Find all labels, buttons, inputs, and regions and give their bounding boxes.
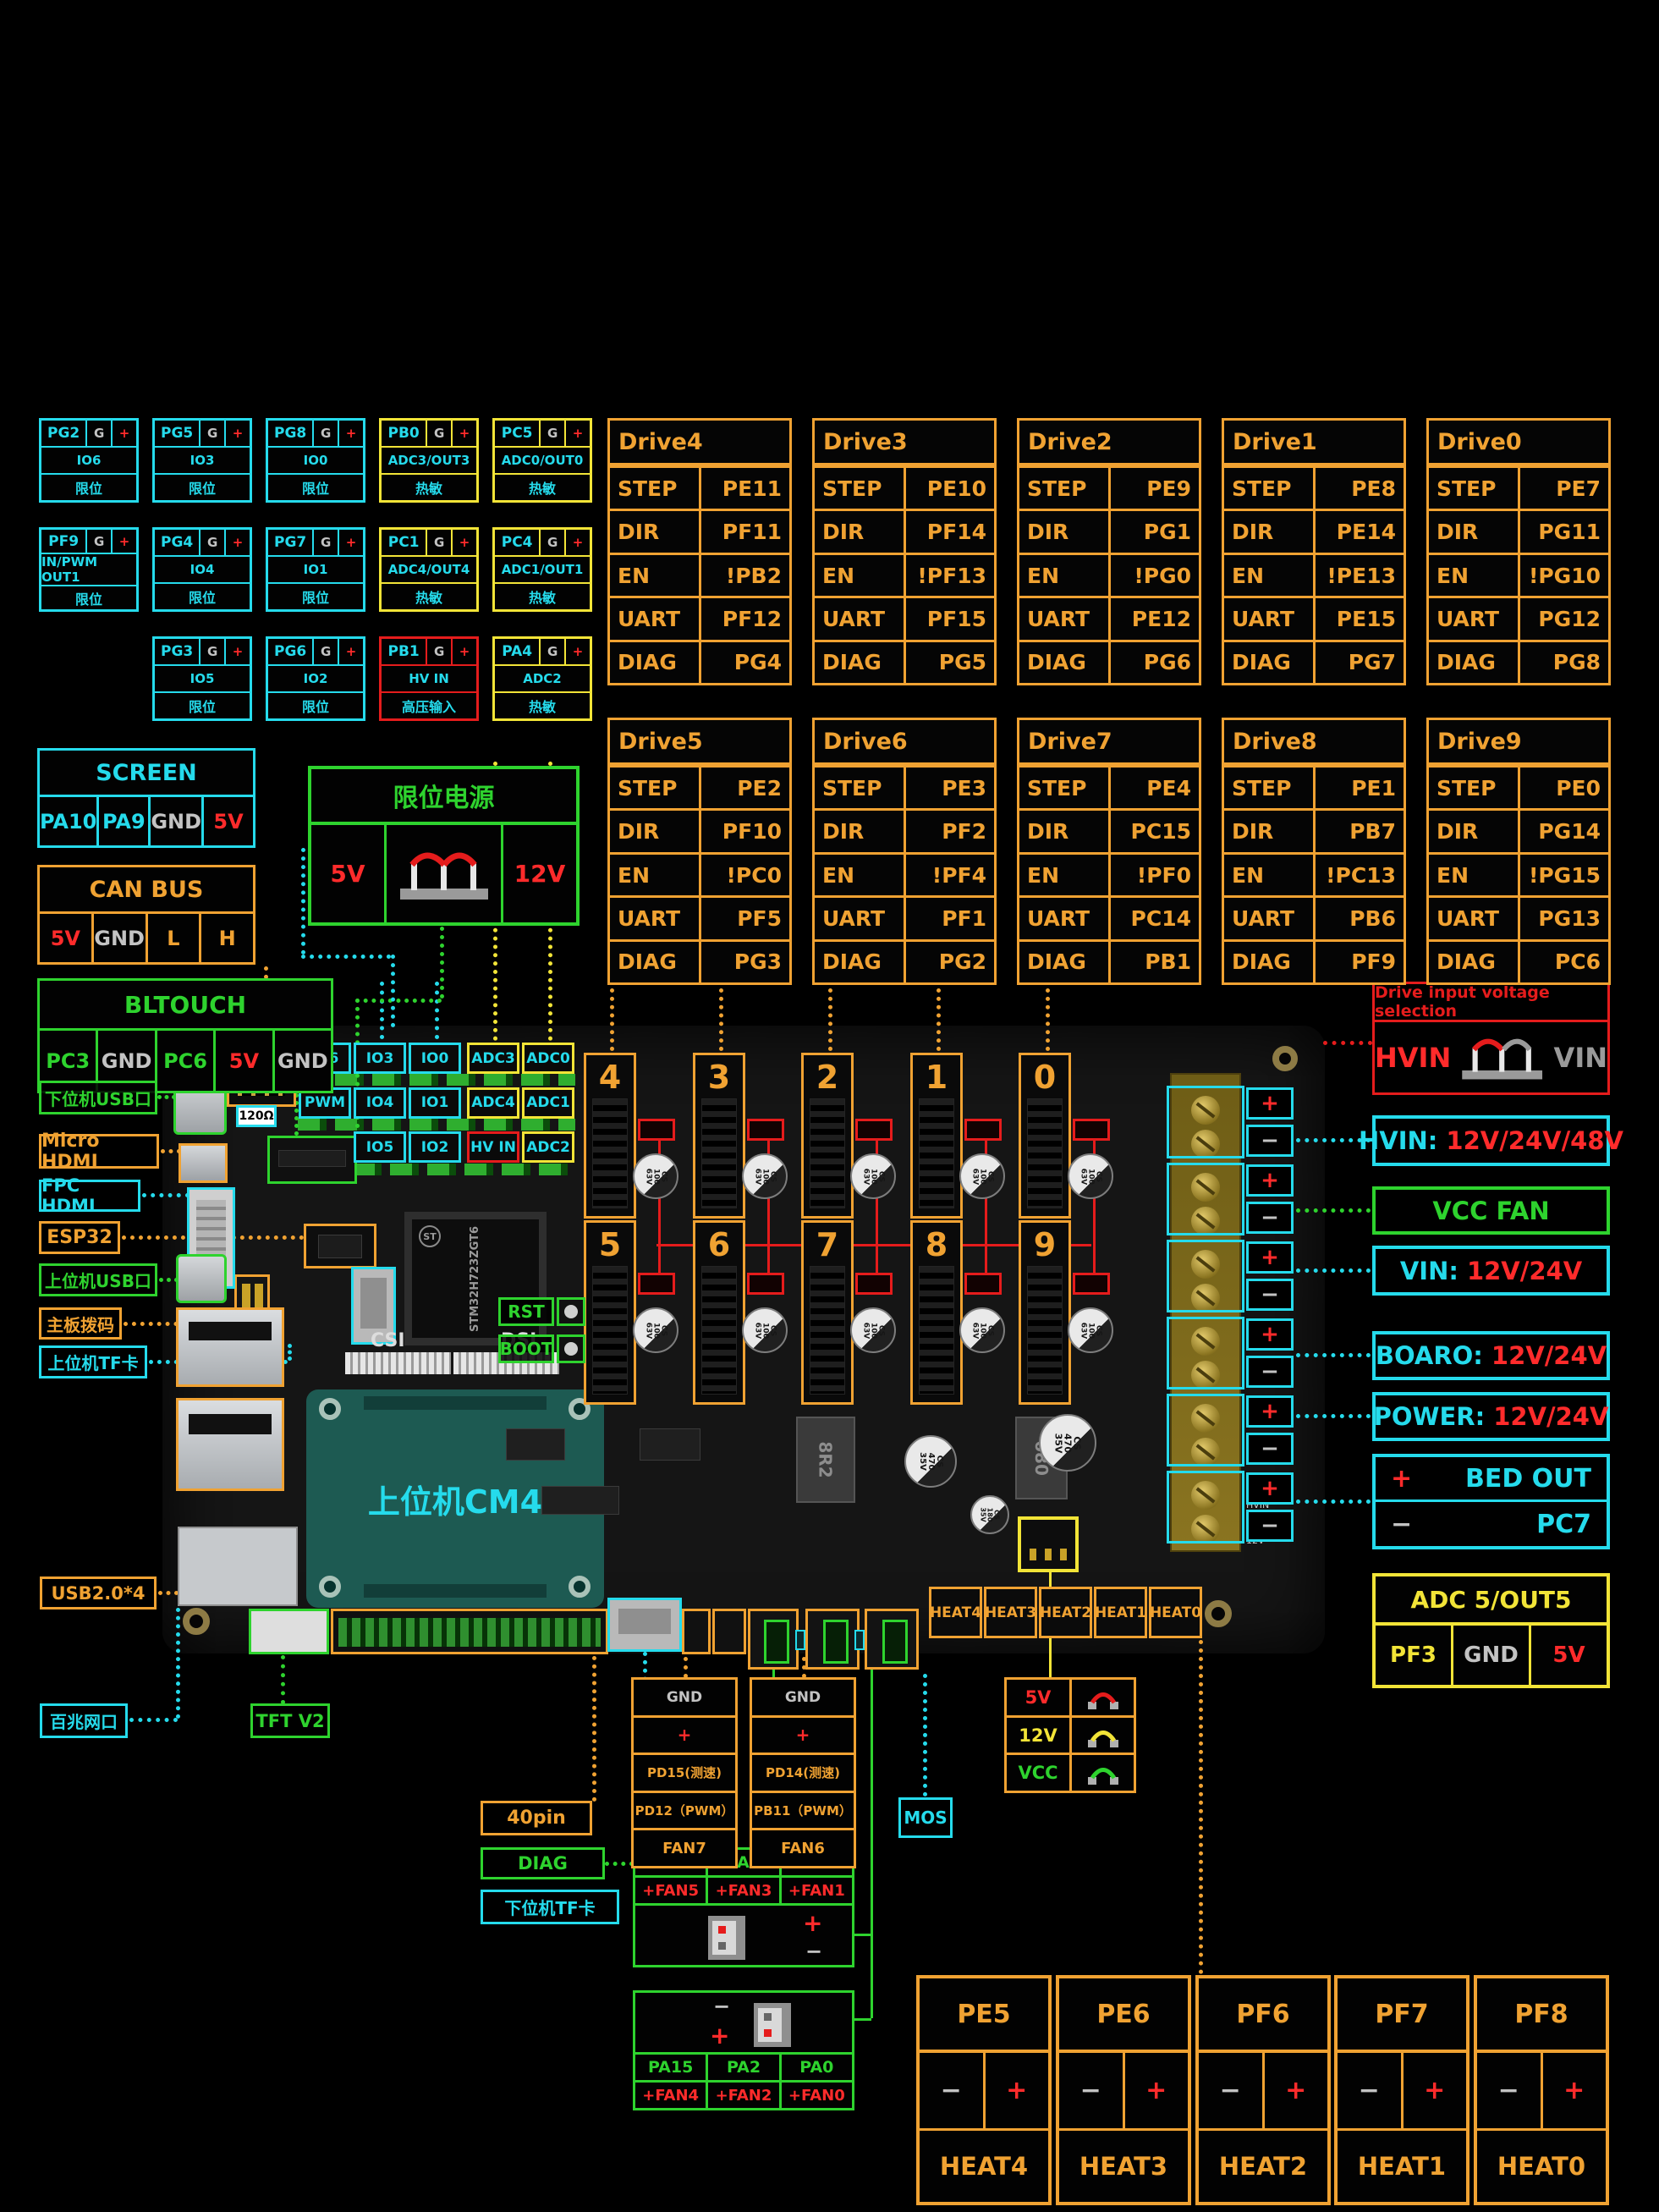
- connector-line: [1296, 1268, 1371, 1273]
- power-prefix: POWER:: [1374, 1402, 1486, 1431]
- inductor: 8R2: [796, 1417, 855, 1503]
- usb-a-stack: [176, 1398, 284, 1491]
- drive-row-uart: UARTPF5: [610, 895, 789, 938]
- drive-pin: PG11: [1520, 511, 1609, 552]
- inductor-marking: 8R2: [816, 1441, 836, 1477]
- drive-signal: DIR: [610, 811, 701, 851]
- board-voltage-label: BOARO: 12V/24V: [1372, 1331, 1610, 1380]
- io-usage-row: 热敏: [495, 473, 590, 500]
- heater-table-PE5: PE5−+HEAT4: [916, 1975, 1052, 2205]
- io-header: PB1G+: [382, 639, 476, 664]
- vin-prefix: VIN:: [1400, 1257, 1458, 1285]
- motherboard-pinout-diagram: SCREEN PA10 PA9 GND 5V CAN BUS 5V GND L …: [0, 0, 1659, 2212]
- drive-pin: PG4: [701, 642, 790, 683]
- io-plus: +: [224, 421, 250, 446]
- drive-signal: STEP: [815, 768, 906, 808]
- heat-connector-label-HEAT4: HEAT4: [929, 1587, 982, 1638]
- drive-signal: EN: [1224, 855, 1316, 895]
- heater-name-row: HEAT4: [920, 2128, 1048, 2202]
- fan7-table-cell: PD12（PWM）: [634, 1793, 735, 1829]
- io-pin-name: PG8: [268, 421, 312, 446]
- fan-voltage-header: [1018, 1516, 1079, 1572]
- fan-even-name: +FAN2: [706, 2083, 778, 2108]
- screen-pin-row: PA10 PA9 GND 5V: [40, 797, 253, 845]
- jumper-icon: [1085, 1723, 1122, 1748]
- callout-4: 上位机USB口: [39, 1263, 157, 1296]
- connector-line: [440, 927, 444, 999]
- drive-signal: EN: [815, 855, 906, 895]
- drive-row-dir: DIRPG1: [1019, 509, 1199, 552]
- capacitor-marking: CS 100 63V: [754, 1322, 777, 1339]
- drive-signal: EN: [1429, 855, 1520, 895]
- driver-socket-pins: [593, 1267, 627, 1394]
- drive-row-en: EN!PG10: [1429, 553, 1608, 596]
- bed-pin: PC7: [1536, 1510, 1591, 1539]
- io-function-row: ADC0/OUT0: [495, 446, 590, 473]
- heater-minus: −: [920, 2053, 983, 2128]
- driver-socket-pins: [1028, 1267, 1062, 1394]
- drive-row-step: STEPPE8: [1224, 465, 1404, 509]
- io-usage: 热敏: [495, 693, 590, 718]
- connector-line: [288, 1344, 292, 1361]
- io-plus: +: [564, 639, 590, 664]
- io-function: ADC0/OUT0: [495, 448, 590, 473]
- drive-title: Drive9: [1429, 720, 1608, 765]
- io-pin-name: PB0: [382, 421, 426, 446]
- bltouch-pin: 5V: [213, 1031, 272, 1091]
- adc5-pin: 5V: [1529, 1626, 1607, 1685]
- mosfet-group: [805, 1609, 860, 1670]
- io-function: HV IN: [382, 666, 476, 691]
- vsel-row-12v: 12V: [1007, 1715, 1134, 1753]
- driver-socket-4: 4: [584, 1053, 636, 1219]
- heater-minus: −: [1477, 2053, 1541, 2128]
- screen-table: SCREEN PA10 PA9 GND 5V: [37, 748, 255, 848]
- drive-row-en: EN!PC13: [1224, 852, 1404, 895]
- drive-pin: PE2: [701, 768, 790, 808]
- driver-socket-number: 6: [708, 1226, 730, 1263]
- driver-socket-number: 1: [926, 1059, 948, 1096]
- driver-socket-number: 0: [1034, 1059, 1056, 1096]
- io-plus: +: [338, 639, 363, 664]
- fan7-table: GND+PD15(测速)PD12（PWM）FAN7: [631, 1677, 738, 1868]
- mos-label: MOS: [898, 1797, 953, 1838]
- io-gnd: G: [312, 421, 338, 446]
- drive-pin: PE0: [1520, 768, 1609, 808]
- pin-strip: [353, 1164, 575, 1175]
- bed-plus: +: [1391, 1464, 1412, 1494]
- capacitor-marking: CS 100 63V: [862, 1168, 885, 1185]
- drive-row-uart: UARTPE15: [1224, 596, 1404, 639]
- terminal-pair-outline: [1167, 1317, 1244, 1389]
- io-usage-row: 热敏: [382, 582, 476, 609]
- fan6-table-cell: GND: [752, 1680, 854, 1715]
- io-usage: 限位: [268, 475, 363, 500]
- mount-hole: [319, 1576, 341, 1598]
- io-function: ADC4/OUT4: [382, 557, 476, 582]
- io-gnd: G: [539, 530, 564, 555]
- drive-row-uart: UARTPG13: [1429, 895, 1608, 938]
- connector-line: [605, 1862, 634, 1866]
- terminator-resistor-label: 120Ω: [236, 1105, 277, 1127]
- drive-row-uart: UARTPF1: [815, 895, 994, 938]
- io-pin-name: PG2: [41, 421, 85, 446]
- fan6-table-row: PB11（PWM）: [752, 1791, 854, 1829]
- connector-line: [435, 982, 439, 1039]
- drive-signal: UART: [610, 898, 701, 938]
- drive-signal: EN: [1224, 555, 1316, 596]
- canbus-pin: 5V: [40, 914, 91, 962]
- driver-socket-number: 2: [816, 1059, 838, 1096]
- drive-signal: DIAG: [1224, 642, 1316, 683]
- heater-table-PF6: PF6−+HEAT2: [1195, 1975, 1331, 2205]
- io-usage: 限位: [155, 475, 250, 500]
- fan6-table-cell: +: [752, 1718, 854, 1753]
- io-header: PC4G+: [495, 530, 590, 555]
- callout-1: Micro HDMI: [39, 1134, 159, 1169]
- vsel-jumper-cell: [1069, 1718, 1134, 1753]
- drive-signal: EN: [610, 555, 701, 596]
- drive-pin: PE11: [701, 468, 790, 509]
- io-header: PG7G+: [268, 530, 363, 555]
- drive-title: Drive5: [610, 720, 789, 765]
- rst-button: [557, 1297, 585, 1326]
- io-function: IN/PWM OUT1: [41, 554, 136, 585]
- connector-line: [719, 988, 723, 1051]
- drive-voltage-selection: Drive input voltage selection HVIN VIN: [1372, 982, 1610, 1095]
- drive-pin: PG6: [1111, 642, 1200, 683]
- bltouch-pin: PC6: [155, 1031, 213, 1091]
- drive-title: Drive3: [815, 421, 994, 465]
- drive-table-Drive1: Drive1STEPPE8DIRPE14EN!PE13UARTPE15DIAGP…: [1222, 418, 1406, 685]
- drive-row-dir: DIRPB7: [1224, 808, 1404, 851]
- heater-name: HEAT3: [1059, 2131, 1188, 2202]
- drive-row-diag: DIAGPG2: [815, 939, 994, 982]
- io-function-row: ADC3/OUT3: [382, 446, 476, 473]
- drive-pin: PG12: [1520, 598, 1609, 639]
- drive-pin: PF2: [906, 811, 995, 851]
- drive-signal: UART: [610, 598, 701, 639]
- io-header: PA4G+: [495, 639, 590, 664]
- drive-pin: !PF4: [906, 855, 995, 895]
- fan-odd-polarity: + −: [635, 1903, 852, 1965]
- board-conn-label-ADC4: ADC4: [467, 1087, 519, 1119]
- capacitor-marking: CS 100 63V: [971, 1322, 994, 1339]
- connector-line: [142, 1193, 190, 1197]
- vsel-5v: 5V: [1007, 1680, 1069, 1715]
- drive-row-diag: DIAGPG5: [815, 640, 994, 683]
- screen-pin: PA9: [96, 797, 148, 845]
- io-function-row: ADC4/OUT4: [382, 555, 476, 582]
- connector-line: [391, 955, 395, 1027]
- canbus-title: CAN BUS: [40, 867, 253, 914]
- drive-row-en: EN!PB2: [610, 553, 789, 596]
- drive-title: Drive7: [1019, 720, 1199, 765]
- callout-11: DIAG: [481, 1847, 605, 1879]
- heater-table-PF8: PF8−+HEAT0: [1474, 1975, 1609, 2205]
- capacitor: CS 100 63V: [850, 1307, 896, 1353]
- heater-minus: −: [1199, 2053, 1262, 2128]
- drive-pin: PF1: [906, 898, 995, 938]
- capacitor: CS 100 63V: [633, 1153, 678, 1199]
- drive-signal: EN: [815, 555, 906, 596]
- drive-row-en: EN!PF13: [815, 553, 994, 596]
- heater-plus: +: [1401, 2053, 1467, 2128]
- dvs-vin-label: VIN: [1554, 1042, 1607, 1074]
- drive-row-step: STEPPE3: [815, 765, 994, 808]
- driver-socket-3: 3: [693, 1053, 745, 1219]
- fan7-table-cell: GND: [634, 1680, 735, 1715]
- drive-table-Drive4: Drive4STEPPE11DIRPF11EN!PB2UARTPF12DIAGP…: [607, 418, 792, 685]
- drive-signal: UART: [1019, 898, 1111, 938]
- io-table-PG2: PG2G+IO6限位: [39, 418, 139, 503]
- io-plus: +: [564, 421, 590, 446]
- terminal-minus: −: [1246, 1125, 1294, 1157]
- fan-even-polarity: − +: [635, 1993, 852, 2052]
- heat-connector-label-HEAT3: HEAT3: [984, 1587, 1037, 1638]
- heater-pin: PE6: [1059, 1978, 1188, 2053]
- connector-line: [1296, 1353, 1371, 1357]
- drive-signal: STEP: [1019, 768, 1111, 808]
- jumper-icon: [1458, 1032, 1546, 1084]
- jumper-icon: [1085, 1760, 1122, 1786]
- drive-row-en: EN!PE13: [1224, 553, 1404, 596]
- micro-hdmi-port: [179, 1143, 228, 1183]
- drive-row-dir: DIRPF11: [610, 509, 789, 552]
- drive-signal: UART: [815, 598, 906, 639]
- drive-pin: PG13: [1520, 898, 1609, 938]
- drive-pin: PE15: [1316, 598, 1404, 639]
- io-gnd: G: [312, 530, 338, 555]
- fan-odd-name: +FAN3: [706, 1878, 778, 1903]
- io-pin-name: PG5: [155, 421, 199, 446]
- jumper-icon: [393, 846, 495, 902]
- drive-pin: PC6: [1520, 942, 1609, 982]
- expansion-connector: [267, 1136, 357, 1184]
- driver-socket-number: 8: [926, 1226, 948, 1263]
- drive-pin: PG3: [701, 942, 790, 982]
- drive-signal: DIAG: [815, 942, 906, 982]
- connector-line: [1296, 1499, 1371, 1504]
- drive-pin: !PF0: [1111, 855, 1200, 895]
- connector-line: [853, 2018, 871, 2021]
- drive-signal: DIAG: [815, 642, 906, 683]
- io-usage-row: 限位: [41, 585, 136, 609]
- drive-signal: DIR: [1429, 511, 1520, 552]
- heater-plus: +: [1541, 2053, 1607, 2128]
- limit-power-title: 限位电源: [311, 769, 576, 825]
- io-usage: 限位: [268, 584, 363, 609]
- io-plus: +: [338, 421, 363, 446]
- screen-pin: PA10: [40, 797, 96, 845]
- drive-signal: DIR: [1019, 811, 1111, 851]
- drive-row-uart: UARTPB6: [1224, 895, 1404, 938]
- drive-pin: PE10: [906, 468, 995, 509]
- mcu-marking: STM32H723ZGT6: [470, 1225, 482, 1331]
- io-pin-name: PG3: [155, 639, 199, 664]
- vsel-jumper-cell: [1069, 1755, 1134, 1791]
- drive-title: Drive6: [815, 720, 994, 765]
- io-function: IO4: [155, 557, 250, 582]
- terminal-minus: −: [1246, 1279, 1294, 1311]
- io-plus: +: [111, 530, 136, 553]
- fan6-table-row: GND: [752, 1680, 854, 1715]
- callout-2: FPC HDMI: [39, 1180, 140, 1212]
- io-gnd: G: [312, 639, 338, 664]
- fan-odd-name: +FAN5: [635, 1878, 706, 1903]
- io-header: PB0G+: [382, 421, 476, 446]
- drive-row-step: STEPPE0: [1429, 765, 1608, 808]
- drive-pin: PG1: [1111, 511, 1200, 552]
- io-usage: 热敏: [495, 475, 590, 500]
- drive-pin: PE3: [906, 768, 995, 808]
- dvs-hvin-label: HVIN: [1375, 1042, 1451, 1074]
- io-usage-row: 限位: [268, 582, 363, 609]
- io-pin-name: PG7: [268, 530, 312, 555]
- io-table-PG3: PG3G+IO5限位: [152, 636, 252, 721]
- drive-row-en: EN!PG15: [1429, 852, 1608, 895]
- board-conn-label-ADC2: ADC2: [522, 1131, 574, 1163]
- drive-table-Drive0: Drive0STEPPE7DIRPG11EN!PG10UARTPG12DIAGP…: [1426, 418, 1611, 685]
- drive-title: Drive1: [1224, 421, 1404, 465]
- drive-pin: !PC0: [701, 855, 790, 895]
- drive-pin: !PG0: [1111, 555, 1200, 596]
- heater-polarity-row: −+: [1477, 2053, 1606, 2128]
- fan-even-plus: +: [710, 2022, 729, 2050]
- drive-pin: PF14: [906, 511, 995, 552]
- driver-socket-pins: [1028, 1099, 1062, 1208]
- io-function-row: IO6: [41, 446, 136, 473]
- capacitor-marking: CS 180 35V: [980, 1507, 1000, 1521]
- drive-pin: !PC13: [1316, 855, 1404, 895]
- csi-label: CSI: [371, 1330, 405, 1351]
- heater-polarity-row: −+: [1338, 2053, 1466, 2128]
- drive-row-diag: DIAGPG3: [610, 939, 789, 982]
- heater-table-PF7: PF7−+HEAT1: [1334, 1975, 1469, 2205]
- driver-voltage-header: [747, 1273, 784, 1295]
- fan-odd-minus: −: [805, 1940, 822, 1963]
- io-pin-name: PC5: [495, 421, 539, 446]
- driver-socket-pins: [920, 1099, 953, 1208]
- bltouch-pin: GND: [272, 1031, 331, 1091]
- drive-row-uart: UARTPC14: [1019, 895, 1199, 938]
- drive-pin: PB7: [1316, 811, 1404, 851]
- fan7-table-row: PD12（PWM）: [634, 1791, 735, 1829]
- drive-table-Drive8: Drive8STEPPE1DIRPB7EN!PC13UARTPB6DIAGPF9: [1222, 718, 1406, 985]
- mount-hole: [1205, 1600, 1232, 1627]
- drive-row-en: EN!PG0: [1019, 553, 1199, 596]
- drive-pin: PF9: [1316, 942, 1404, 982]
- heater-name: HEAT0: [1477, 2131, 1606, 2202]
- power-voltage-label: POWER: 12V/24V: [1372, 1392, 1610, 1441]
- screen-pin: 5V: [201, 797, 253, 845]
- drive-pin: !PE13: [1316, 555, 1404, 596]
- connector-line: [937, 988, 941, 1051]
- vcc-fan-text: VCC FAN: [1432, 1197, 1549, 1225]
- limit-power-jumper-cell: [384, 825, 501, 922]
- drive-row-step: STEPPE10: [815, 465, 994, 509]
- drive-signal: STEP: [1019, 468, 1111, 509]
- drive-row-diag: DIAGPG7: [1224, 640, 1404, 683]
- board-conn-label-IO5: IO5: [354, 1131, 406, 1163]
- terminal-pair-outline: [1167, 1086, 1244, 1158]
- io-plus: +: [338, 530, 363, 555]
- drive-row-diag: DIAGPB1: [1019, 939, 1199, 982]
- screen-pin: GND: [148, 797, 201, 845]
- connector-line: [380, 982, 384, 1039]
- io-function-row: HV IN: [382, 664, 476, 691]
- drive-title: Drive4: [610, 421, 789, 465]
- io-usage-row: 热敏: [495, 582, 590, 609]
- mosfet-group: [748, 1609, 799, 1670]
- io-table-PF9: PF9G+IN/PWM OUT1限位: [39, 527, 139, 612]
- drive-signal: UART: [1429, 598, 1520, 639]
- bed-out-table: + BED OUT − PC7: [1372, 1454, 1610, 1549]
- heater-name-row: HEAT0: [1477, 2128, 1606, 2202]
- drive-table-Drive6: Drive6STEPPE3DIRPF2EN!PF4UARTPF1DIAGPG2: [812, 718, 997, 985]
- fan-even-name: +FAN4: [635, 2083, 706, 2108]
- io-pin-name: PC1: [382, 530, 426, 555]
- callout-3: ESP32: [39, 1221, 120, 1254]
- heater-name: HEAT2: [1199, 2131, 1327, 2202]
- terminal-minus: −: [1246, 1433, 1294, 1465]
- drive-pin: PF5: [701, 898, 790, 938]
- io-function: IO1: [268, 557, 363, 582]
- bltouch-table: BLTOUCH PC3 GND PC6 5V GND: [37, 978, 333, 1093]
- usb-a-stack: [176, 1307, 284, 1387]
- drive-pin: !PB2: [701, 555, 790, 596]
- heater-plus: +: [1262, 2053, 1328, 2128]
- fan7-table-cell: FAN7: [634, 1830, 735, 1866]
- drive-row-uart: UARTPG12: [1429, 596, 1608, 639]
- connector-line: [684, 1657, 688, 1678]
- board-conn-label-ADC1: ADC1: [522, 1087, 574, 1119]
- io-gnd: G: [426, 639, 451, 664]
- drive-pin: PB1: [1111, 942, 1200, 982]
- heater-pin: PF6: [1199, 1978, 1327, 2053]
- io-table-PG5: PG5G+IO3限位: [152, 418, 252, 503]
- callout-12: 下位机TF卡: [481, 1890, 619, 1924]
- io-usage-row: 限位: [268, 691, 363, 718]
- heater-polarity-row: −+: [920, 2053, 1048, 2128]
- io-table-PB0: PB0G+ADC3/OUT3热敏: [379, 418, 479, 503]
- io-plus: +: [451, 530, 476, 555]
- driver-socket-number: 3: [708, 1059, 730, 1096]
- capacitor-marking: CS 100 63V: [971, 1168, 994, 1185]
- heater-pin: PF7: [1338, 1978, 1466, 2053]
- io-table-PA4: PA4G+ADC2热敏: [492, 636, 592, 721]
- drive-title: Drive2: [1019, 421, 1199, 465]
- drive-signal: STEP: [1429, 468, 1520, 509]
- io-usage: 热敏: [382, 584, 476, 609]
- drive-signal: UART: [815, 898, 906, 938]
- drive-pin: !PG15: [1520, 855, 1609, 895]
- drive-pin: PE4: [1111, 768, 1200, 808]
- connector-line: [1296, 1208, 1371, 1213]
- io-plus: +: [451, 421, 476, 446]
- io-usage: 限位: [268, 693, 363, 718]
- drive-title: Drive0: [1429, 421, 1608, 465]
- drive-row-diag: DIAGPG8: [1429, 640, 1608, 683]
- drive-signal: STEP: [815, 468, 906, 509]
- io-function-row: IN/PWM OUT1: [41, 553, 136, 585]
- connector-line: [1046, 988, 1050, 1051]
- io-header: PC5G+: [495, 421, 590, 446]
- io-table-PG8: PG8G+IO0限位: [266, 418, 365, 503]
- fan6-table-row: FAN6: [752, 1828, 854, 1866]
- io-header: PG4G+: [155, 530, 250, 555]
- io-gnd: G: [426, 421, 451, 446]
